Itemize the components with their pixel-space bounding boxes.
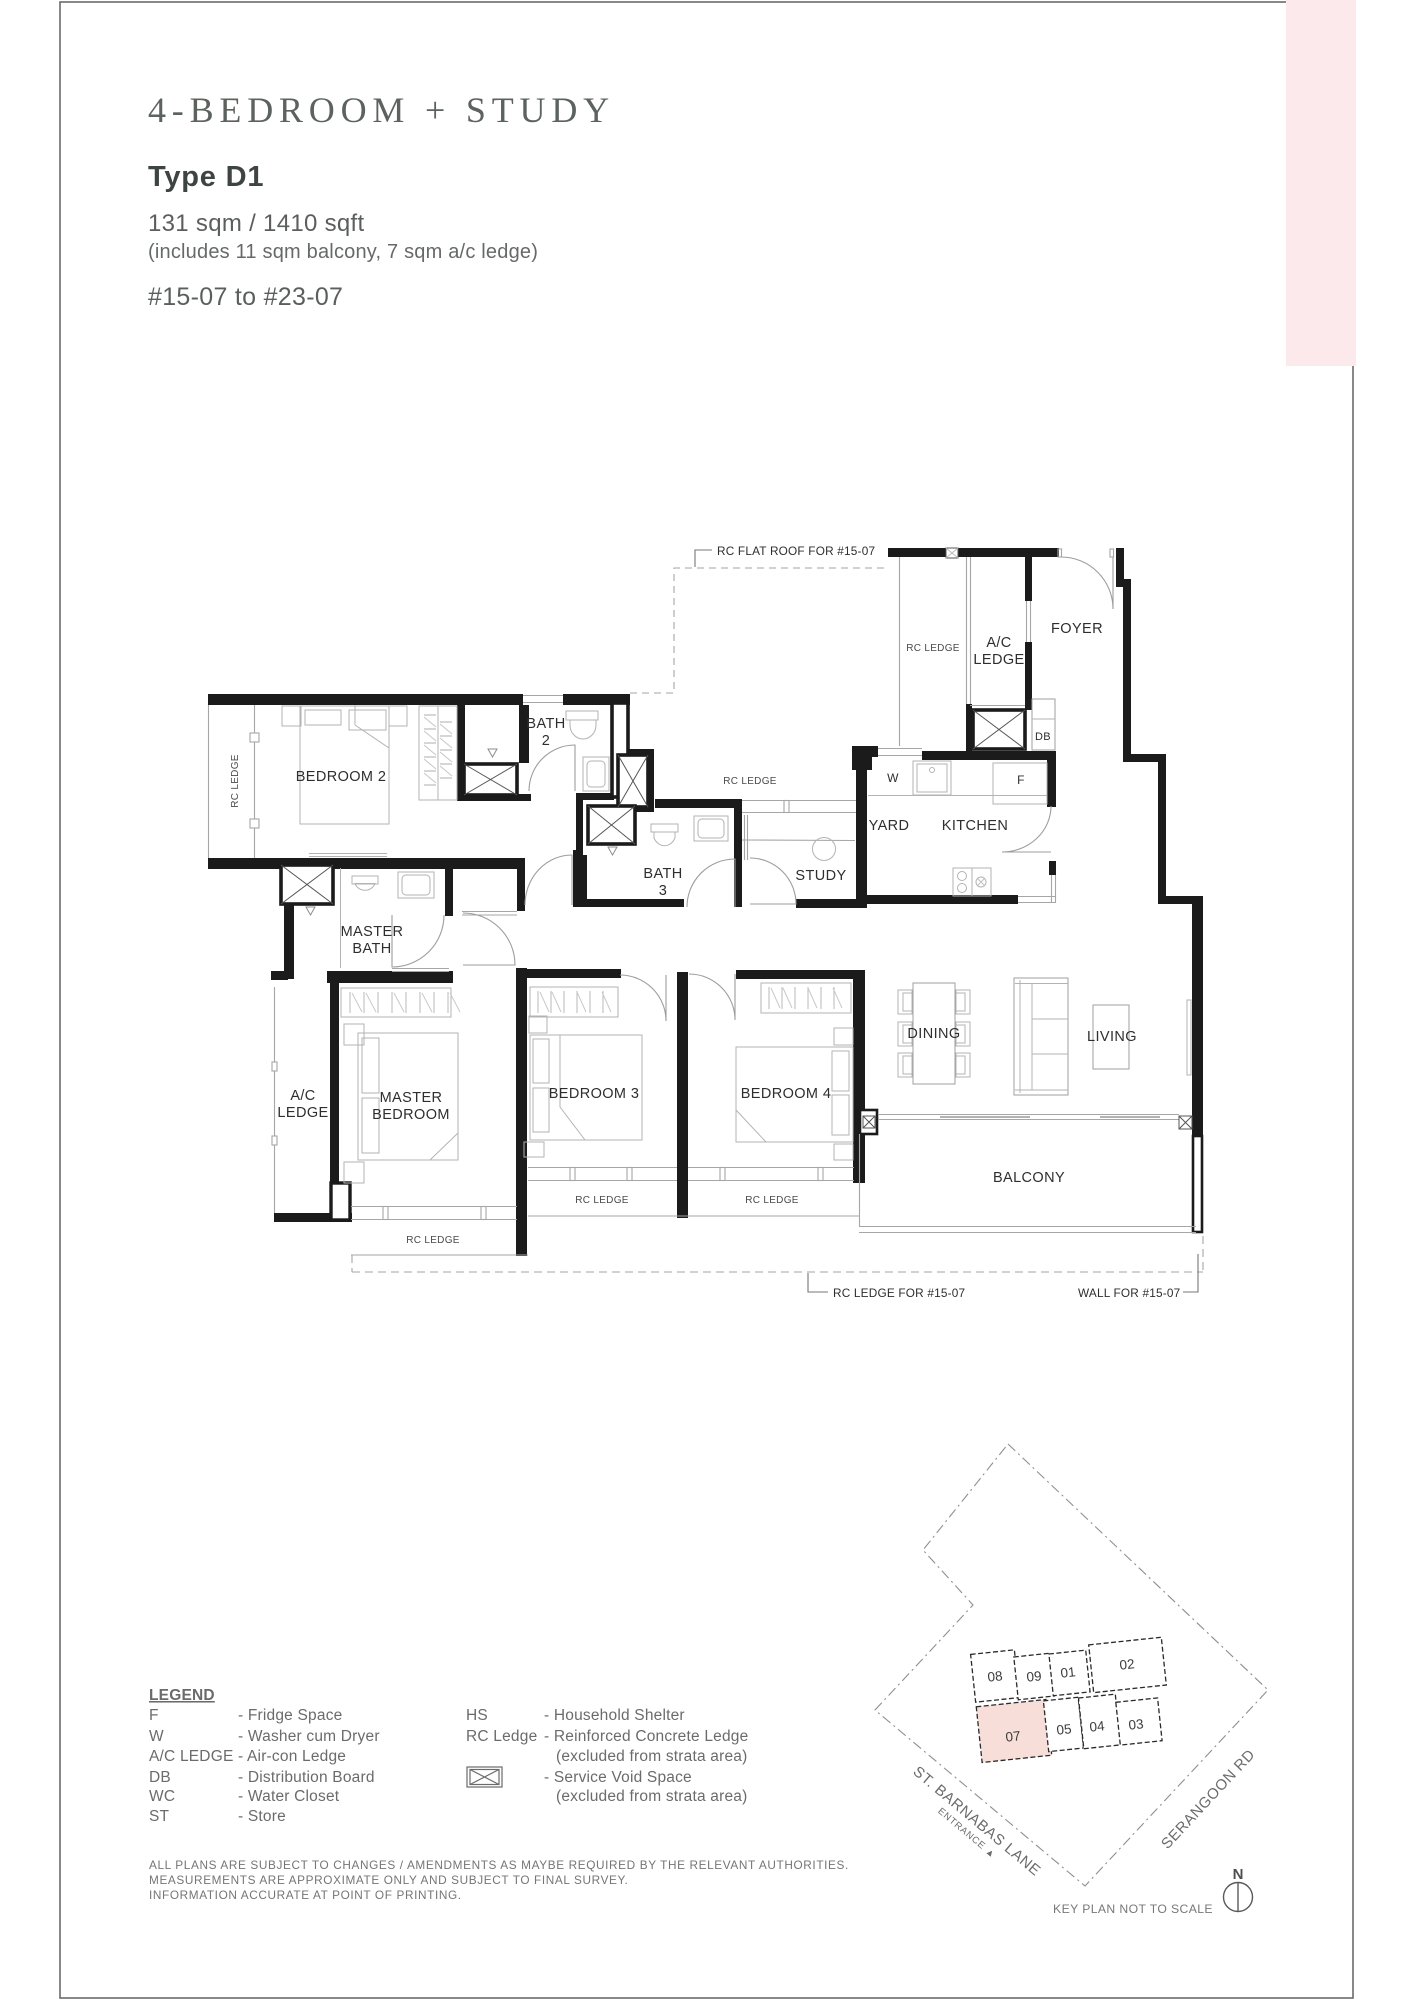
- svg-text:- Water Closet: - Water Closet: [238, 1788, 340, 1805]
- svg-text:MASTER: MASTER: [341, 924, 404, 940]
- svg-text:ST. BARNABAS LANE: ST. BARNABAS LANE: [910, 1763, 1044, 1880]
- svg-text:RC LEDGE: RC LEDGE: [575, 1195, 629, 1206]
- svg-text:WC: WC: [149, 1788, 175, 1805]
- svg-text:BATH: BATH: [352, 941, 391, 957]
- svg-text:STUDY: STUDY: [795, 868, 846, 884]
- svg-text:05: 05: [1056, 1721, 1073, 1737]
- svg-text:08: 08: [987, 1668, 1004, 1684]
- svg-text:A/C LEDGE: A/C LEDGE: [149, 1748, 234, 1765]
- svg-text:- Reinforced Concrete Ledge: - Reinforced Concrete Ledge: [544, 1728, 748, 1745]
- svg-text:(includes 11 sqm balcony, 7 sq: (includes 11 sqm balcony, 7 sqm a/c ledg…: [148, 241, 538, 263]
- svg-text:BEDROOM 4: BEDROOM 4: [741, 1086, 832, 1102]
- svg-text:RC LEDGE: RC LEDGE: [230, 754, 241, 808]
- svg-text:- Fridge Space: - Fridge Space: [238, 1707, 342, 1724]
- svg-text:- Household Shelter: - Household Shelter: [544, 1707, 685, 1724]
- svg-text:09: 09: [1026, 1668, 1043, 1684]
- svg-text:YARD: YARD: [869, 818, 910, 834]
- svg-text:01: 01: [1060, 1664, 1077, 1680]
- svg-text:(excluded from strata area): (excluded from strata area): [556, 1788, 747, 1805]
- svg-text:07: 07: [1005, 1728, 1022, 1744]
- svg-text:- Washer cum Dryer: - Washer cum Dryer: [238, 1728, 380, 1745]
- svg-text:LEGEND: LEGEND: [149, 1687, 215, 1704]
- svg-text:- Air-con Ledge: - Air-con Ledge: [238, 1748, 346, 1765]
- svg-text:LEDGE: LEDGE: [973, 652, 1024, 668]
- svg-text:4-BEDROOM + STUDY: 4-BEDROOM + STUDY: [148, 90, 615, 130]
- svg-text:KEY PLAN NOT TO SCALE: KEY PLAN NOT TO SCALE: [1053, 1902, 1213, 1916]
- svg-text:MASTER: MASTER: [380, 1090, 443, 1106]
- svg-text:DB: DB: [149, 1769, 171, 1786]
- svg-text:RC Ledge: RC Ledge: [466, 1728, 537, 1745]
- svg-text:LEDGE: LEDGE: [277, 1105, 328, 1121]
- svg-text:N: N: [1233, 1866, 1244, 1883]
- svg-text:RC LEDGE: RC LEDGE: [723, 776, 777, 787]
- svg-text:- Service Void Space: - Service Void Space: [544, 1769, 692, 1786]
- svg-text:INFORMATION ACCURATE AT POINT: INFORMATION ACCURATE AT POINT OF PRINTIN…: [149, 1888, 462, 1902]
- svg-text:3: 3: [659, 883, 667, 899]
- svg-text:RC LEDGE: RC LEDGE: [406, 1235, 460, 1246]
- svg-text:W: W: [887, 771, 899, 785]
- svg-text:131 sqm / 1410 sqft: 131 sqm / 1410 sqft: [148, 210, 365, 237]
- svg-text:F: F: [1017, 773, 1025, 787]
- svg-text:RC LEDGE FOR #15-07: RC LEDGE FOR #15-07: [833, 1286, 965, 1300]
- svg-text:F: F: [149, 1707, 159, 1724]
- svg-text:SERANGOON RD: SERANGOON RD: [1158, 1746, 1259, 1852]
- svg-text:W: W: [149, 1728, 164, 1745]
- svg-text:BEDROOM 2: BEDROOM 2: [296, 769, 387, 785]
- svg-text:ST: ST: [149, 1808, 170, 1825]
- svg-text:(excluded from strata area): (excluded from strata area): [556, 1748, 747, 1765]
- svg-text:BEDROOM: BEDROOM: [372, 1107, 450, 1123]
- svg-text:BATH: BATH: [526, 716, 565, 732]
- svg-text:A/C: A/C: [290, 1088, 315, 1104]
- svg-text:WALL FOR #15-07: WALL FOR #15-07: [1078, 1286, 1180, 1300]
- svg-text:- Distribution Board: - Distribution Board: [238, 1769, 375, 1786]
- svg-text:04: 04: [1089, 1718, 1106, 1735]
- svg-text:#15-07 to #23-07: #15-07 to #23-07: [148, 283, 343, 311]
- svg-text:BEDROOM 3: BEDROOM 3: [549, 1086, 640, 1102]
- svg-text:HS: HS: [466, 1707, 488, 1724]
- svg-text:Type D1: Type D1: [148, 161, 264, 193]
- svg-text:A/C: A/C: [986, 635, 1011, 651]
- svg-text:FOYER: FOYER: [1051, 621, 1103, 637]
- svg-text:- Store: - Store: [238, 1808, 286, 1825]
- svg-text:RC LEDGE: RC LEDGE: [745, 1195, 799, 1206]
- svg-text:03: 03: [1128, 1716, 1145, 1732]
- svg-text:DINING: DINING: [907, 1026, 960, 1042]
- svg-text:LIVING: LIVING: [1087, 1029, 1137, 1045]
- svg-text:RC LEDGE: RC LEDGE: [906, 643, 960, 654]
- svg-text:02: 02: [1119, 1656, 1136, 1672]
- svg-text:ALL PLANS ARE SUBJECT TO CHANG: ALL PLANS ARE SUBJECT TO CHANGES / AMEND…: [149, 1858, 849, 1872]
- svg-text:RC FLAT ROOF FOR #15-07: RC FLAT ROOF FOR #15-07: [717, 544, 875, 558]
- svg-text:2: 2: [542, 733, 550, 749]
- svg-text:DB: DB: [1035, 731, 1051, 743]
- svg-text:MEASUREMENTS ARE APPROXIMATE O: MEASUREMENTS ARE APPROXIMATE ONLY AND SU…: [149, 1873, 628, 1887]
- svg-text:KITCHEN: KITCHEN: [942, 818, 1008, 834]
- svg-text:BALCONY: BALCONY: [993, 1170, 1065, 1186]
- svg-text:BATH: BATH: [643, 866, 682, 882]
